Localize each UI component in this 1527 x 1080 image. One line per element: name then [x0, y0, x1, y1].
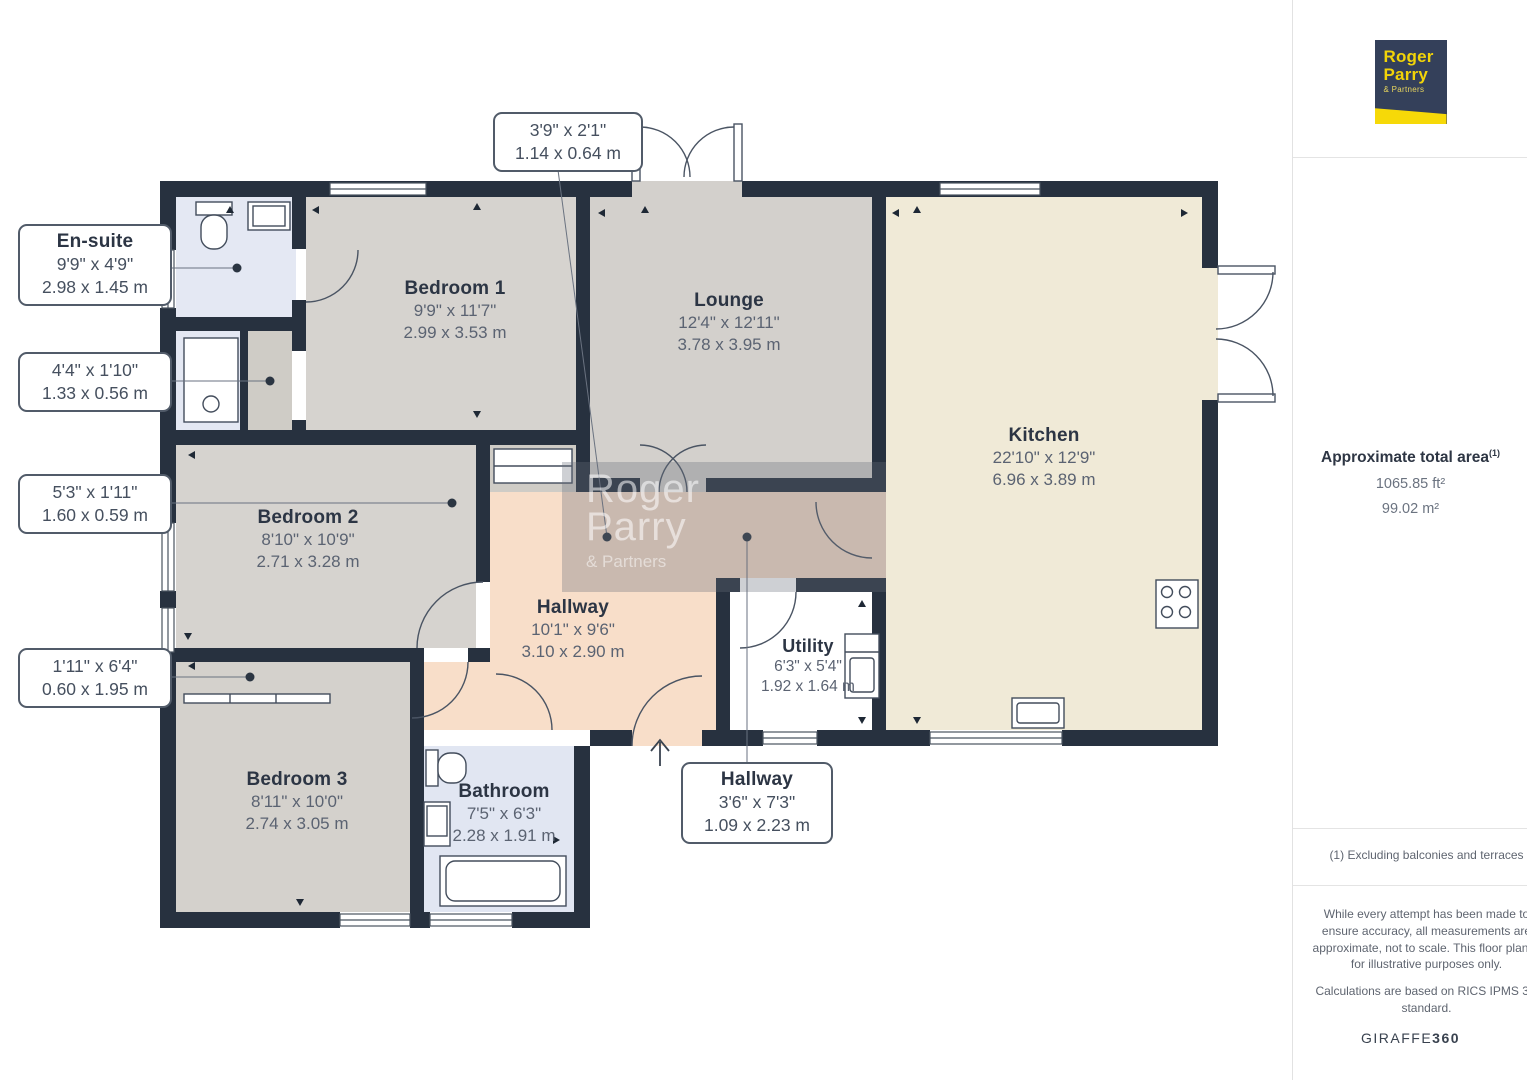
- sidebar-divider: [1293, 828, 1527, 829]
- room-label-bedroom3: Bedroom 3 8'11" x 10'0" 2.74 x 3.05 m: [197, 769, 397, 836]
- callout-lounge-doors: 3'9" x 2'1" 1.14 x 0.64 m: [493, 112, 643, 172]
- callout-window-1: 4'4" x 1'10" 1.33 x 0.56 m: [18, 352, 172, 412]
- watermark-line: Roger: [586, 470, 886, 508]
- callout-ensuite: En-suite 9'9" x 4'9" 2.98 x 1.45 m: [18, 224, 172, 306]
- total-area-block: Approximate total area(1) 1065.85 ft² 99…: [1293, 448, 1527, 517]
- total-area-m: 99.02 m²: [1293, 501, 1527, 517]
- callout-hallway-entrance: Hallway 3'6" x 7'3" 1.09 x 2.23 m: [681, 762, 833, 844]
- standard-text: Calculations are based on RICS IPMS 3C s…: [1293, 983, 1527, 1017]
- room-label-utility: Utility 6'3" x 5'4" 1.92 x 1.64 m: [733, 636, 883, 698]
- logo-yellow-wedge: [1375, 102, 1447, 124]
- giraffe360-brand: GIRAFFE360: [1293, 1030, 1527, 1046]
- room-label-bathroom: Bathroom 7'5" x 6'3" 2.28 x 1.91 m: [414, 781, 594, 848]
- logo-text: Roger Parry & Partners: [1384, 48, 1434, 94]
- watermark-line: & Partners: [586, 552, 886, 572]
- room-label-bedroom2: Bedroom 2 8'10" x 10'9" 2.71 x 3.28 m: [208, 507, 408, 574]
- callout-window-2: 5'3" x 1'11" 1.60 x 0.59 m: [18, 474, 172, 534]
- floorplan-area: Roger Parry & Partners Bedroom 1 9'9" x …: [0, 0, 1292, 1080]
- floorplan-page: Roger Parry & Partners Bedroom 1 9'9" x …: [0, 0, 1527, 1080]
- total-area-title: Approximate total area(1): [1293, 448, 1527, 467]
- disclaimer-text: While every attempt has been made to ens…: [1293, 906, 1527, 973]
- room-label-hallway: Hallway 10'1" x 9'6" 3.10 x 2.90 m: [473, 597, 673, 664]
- sidebar-divider: [1293, 157, 1527, 158]
- info-sidebar: Roger Parry & Partners Approximate total…: [1292, 0, 1527, 1080]
- room-label-kitchen: Kitchen 22'10" x 12'9" 6.96 x 3.89 m: [944, 425, 1144, 492]
- room-label-lounge: Lounge 12'4" x 12'11" 3.78 x 3.95 m: [629, 290, 829, 357]
- agency-watermark: Roger Parry & Partners: [562, 462, 886, 592]
- callout-wardrobe: 1'11" x 6'4" 0.60 x 1.95 m: [18, 648, 172, 708]
- roger-parry-logo: Roger Parry & Partners: [1375, 40, 1447, 124]
- area-footnote: (1) Excluding balconies and terraces: [1293, 847, 1527, 864]
- watermark-line: Parry: [586, 508, 886, 546]
- room-label-bedroom1: Bedroom 1 9'9" x 11'7" 2.99 x 3.53 m: [355, 278, 555, 345]
- total-area-ft: 1065.85 ft²: [1293, 476, 1527, 492]
- sidebar-divider: [1293, 885, 1527, 886]
